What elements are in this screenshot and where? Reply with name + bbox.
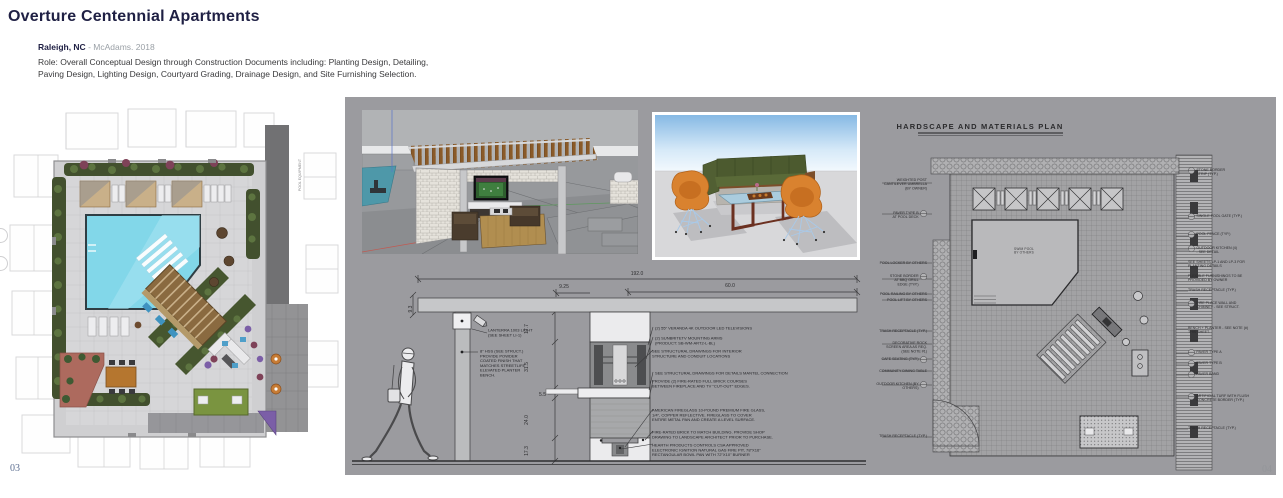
keynote: DECORATIVE ROCK SCREEN AREA AS REQ. (SEE… [843, 341, 927, 353]
elevation-note: SEE STRUCTURAL DRAWINGS FOR DETAILS MANT… [655, 371, 867, 376]
pool-plan [972, 220, 1078, 305]
keynote: BENCH + PLANTER - SEE NOTE (#) THIS SHEE… [1188, 326, 1278, 334]
elevation-note: (2) 55" VERANDA 4K OUTDOOR LED TELEVISIO… [655, 326, 867, 331]
svg-text:17.3: 17.3 [524, 446, 530, 456]
keynote: POOL FENCE (TYP.) [1188, 232, 1278, 238]
elevation-note: AMERICAN FIREGLASS 10-POUND PREMIUM FIRE… [652, 408, 864, 422]
hss-post [455, 312, 470, 461]
keynote: PAVER TYPE A [1188, 350, 1278, 356]
keynote: POOL LIFT BY OTHERS [843, 298, 927, 302]
detail-callout-icon [1188, 371, 1195, 378]
detail-callout-icon [1188, 245, 1195, 252]
portfolio-spread: Overture Centennial Apartments Raleigh, … [0, 0, 1283, 498]
keynote: PAVER TYPE B [1188, 361, 1278, 367]
courtyard-site-plan-rendering: POOL EQUIPMENT [8, 97, 340, 475]
keynote: TRASH RECEPTACLE (TYP.) [1188, 426, 1278, 430]
project-location: Raleigh, NC [38, 42, 86, 52]
detail-callout-icon [1188, 213, 1195, 220]
svg-text:5.5: 5.5 [539, 392, 546, 398]
keynote: TRASH RECEPTACLE (TYP.) [843, 329, 927, 333]
overhead-beam [418, 298, 857, 312]
elevation-note: PROVIDE (2) FIRE-RATED FULL BRICK COURSE… [652, 379, 864, 389]
keynote: STONE BORDER AT BBQ GRILL EDGE (TYP.) [843, 274, 927, 286]
detail-callout-icon [1188, 360, 1195, 367]
dim-overall: 192.0 [631, 271, 644, 277]
keynote: FIRE PLACE WALL AND CHIMNEY - SEE STRUCT… [1188, 301, 1278, 309]
detail-callout-icon [1188, 167, 1195, 174]
elevation-note: 8" HSS (SEE STRUCT.) PROVIDE POWDER COAT… [480, 349, 557, 378]
svg-text:24.0: 24.0 [524, 415, 530, 425]
pool-plan-label: SWIM POOL BY OTHERS [996, 247, 1052, 254]
page-number-left: 03 [10, 463, 20, 474]
keynote: PAVER BAND [1188, 372, 1278, 378]
elevation-note: LANTERRA 1003 LIGHT (SEE SHEET LI-1) [488, 328, 565, 338]
detail-callout-icon [920, 381, 927, 388]
elevation-note: (2) SUNBRITETV MOUNTING ARMS (PRODUCT: S… [655, 336, 867, 346]
keynote: SEE SHEETS LP-1 AND LP-3 FOR PLANTING DE… [1188, 260, 1278, 268]
detail-callout-icon [1188, 393, 1195, 400]
outdoor-tv-pavilion-rendering [362, 110, 638, 254]
keynote: OUTDOOR KITCHEN (4) - SEE DETAIL [1188, 246, 1278, 254]
pool-equipment-label: POOL EQUIPMENT [298, 158, 302, 191]
elevation-note: FIRE-RATED BRICK TO MATCH BUILDING. PROV… [652, 430, 864, 440]
keynote: FLEXIBLE FURNISHINGS TO BE PROVIDED BY O… [1188, 274, 1278, 282]
keynote: STONE BORDER STRIP (TYP.) [1188, 168, 1278, 176]
keynote: ARTIFICIAL TURF WITH FLUSH CONCRETE BORD… [1188, 394, 1278, 402]
person-figure [362, 348, 438, 461]
keynote: POOL LOCKER BY OTHERS [843, 261, 927, 265]
keynote: POOL RAILING BY OTHERS [843, 292, 927, 296]
detail-callout-icon [1188, 349, 1195, 356]
page-number-right: 04 [1248, 464, 1272, 475]
page-title: Overture Centennial Apartments [8, 8, 260, 26]
firm-and-year: - McAdams. 2018 [86, 42, 155, 52]
dim-tv-offset: 9.25 [559, 284, 569, 290]
outdoor-tv [474, 176, 508, 200]
detail-callout-icon [920, 273, 927, 280]
project-location-line: Raleigh, NC - McAdams. 2018 [38, 42, 155, 52]
hardscape-plan-title: HARDSCAPE AND MATERIALS PLAN [897, 122, 1064, 131]
elevation-note: SEE STRUCTURAL DRAWINGS FOR INTERIOR STR… [652, 349, 864, 359]
role-description: Role: Overall Conceptual Design through … [38, 57, 428, 81]
keynote: COMMUNITY DINING TABLE [843, 369, 927, 373]
detail-callout-icon [1188, 231, 1195, 238]
keynote: TRASH RECEPTACLE (TYP.) [843, 434, 927, 438]
outdoor-furniture-rendering [652, 112, 860, 260]
elevation-note: HEARTH PRODUCTS CONTROLS CSA APPROVED EL… [652, 443, 864, 457]
detail-callout-icon [1188, 300, 1195, 307]
page-edge-arc [0, 228, 8, 243]
keynote: OUTDOOR KITCHEN (BY OTHERS) [843, 382, 927, 390]
games-lawn [194, 389, 248, 415]
building-band [265, 125, 289, 307]
detail-callout-icon [920, 356, 927, 363]
detail-callout-icon [920, 210, 927, 217]
keynote: SINGLE POOL GATE (TYP.) [1188, 214, 1278, 220]
page-edge-arc [0, 256, 8, 271]
keynote: TRASH RECEPTACLE (TYP.) [1188, 288, 1278, 292]
keynote: CAFE SEATING (TYP.) [843, 357, 927, 363]
keynote: PAVER TYPE B AT POOL DECK [843, 211, 927, 219]
dim-tv-width: 60.0 [725, 283, 735, 289]
turf-plan [1080, 416, 1138, 448]
keynote: WEIGHTED POST CANTILEVER UMBRELLA (BY OW… [843, 178, 927, 190]
